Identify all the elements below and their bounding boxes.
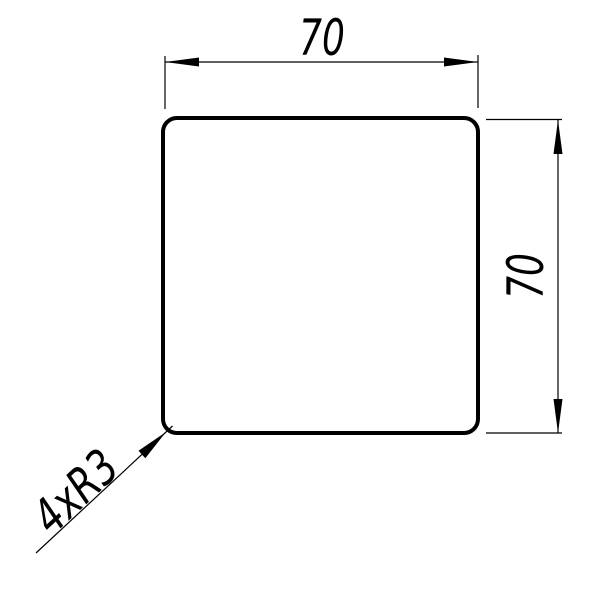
arrowhead-down-icon	[554, 399, 563, 433]
radius-note-text: 4xR3	[22, 439, 130, 545]
arrowhead-right-icon	[444, 58, 478, 67]
leader-arrowhead-icon	[139, 432, 167, 458]
arrowhead-up-icon	[554, 120, 563, 154]
technical-drawing: 70 70 4xR3	[0, 0, 600, 600]
top-dimension-text: 70	[299, 10, 345, 67]
drawing-canvas: 70 70 4xR3	[0, 0, 600, 600]
part-outline	[163, 118, 478, 433]
right-dimension: 70	[486, 120, 563, 434]
arrowhead-left-icon	[165, 58, 199, 67]
top-dimension: 70	[165, 10, 478, 109]
right-dimension-text: 70	[498, 253, 555, 299]
radius-leader: 4xR3	[22, 426, 172, 553]
